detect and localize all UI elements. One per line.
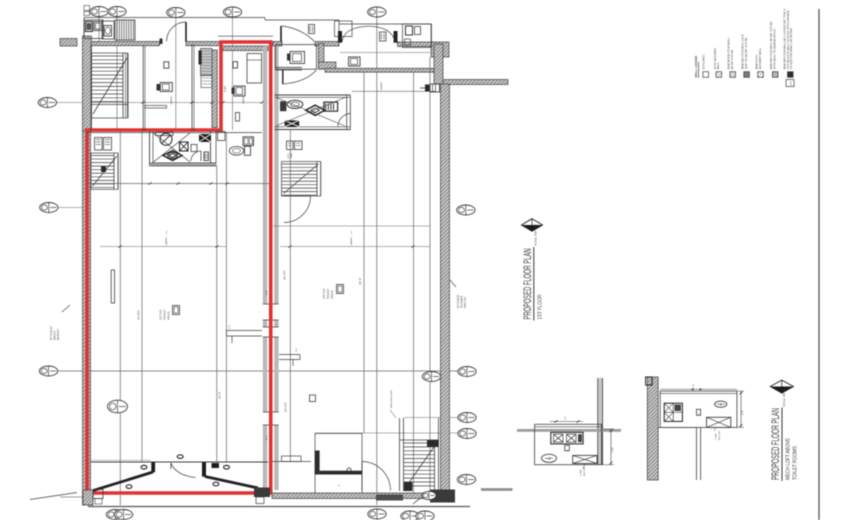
svg-text:18'-4½": 18'-4½" [283,270,287,280]
svg-text:MASONRY WALL: MASONRY WALL [758,47,762,69]
svg-text:ADL: ADL [720,403,723,406]
svg-text:3'-0": 3'-0" [229,324,231,329]
svg-text:CARPET — xx: CARPET — xx [350,230,353,245]
svg-text:18'-0": 18'-0" [358,277,362,285]
svg-text:OUTLINE B: OUTLINE B [462,295,464,308]
svg-text:1ST FLOOR: 1ST FLOOR [538,295,544,320]
svg-text:DUCT UP: DUCT UP [584,466,586,476]
svg-text:WALL LEGEND: WALL LEGEND [694,55,698,78]
svg-text:MECH LOFT ABOVE: MECH LOFT ABOVE [786,438,792,480]
svg-text:9'-9½": 9'-9½" [223,85,227,92]
svg-text:2HR: 2HR [791,81,793,86]
svg-text:WALK AT: WALK AT [54,330,57,340]
svg-text:9'-1": 9'-1" [266,435,269,440]
svg-text:1ST FLR: 1ST FLR [322,289,326,299]
svg-text:W/ 5/8" GYP BD: W/ 5/8" GYP BD [730,50,734,70]
svg-text:CARPET: CARPET [380,81,383,91]
svg-text:CARPET: CARPET [242,94,245,104]
svg-text:16'-6": 16'-6" [218,391,222,399]
svg-text:AS RQD FOR NEW 1-HR RATING: AS RQD FOR NEW 1-HR RATING [789,28,793,69]
svg-text:3'-0": 3'-0" [693,383,695,387]
svg-text:1ST FLR: 1ST FLR [159,310,163,320]
svg-text:EXTG WALL: EXTG WALL [701,54,705,70]
svg-text:SCALE: 3/16"=1'-0": SCALE: 3/16"=1'-0" [534,223,538,246]
svg-text:PROPOSED FLOOR PLAN: PROPOSED FLOOR PLAN [522,248,534,319]
svg-text:EXTG WALL TO REMAIN PATCH: EXTG WALL TO REMAIN PATCH [772,29,776,69]
svg-text:TOILET ROOMS: TOILET ROOMS [793,446,799,480]
svg-text:7'-6": 7'-6" [612,447,615,452]
svg-text:EXTG ALLEY: EXTG ALLEY [50,326,53,340]
svg-text:10'-2½": 10'-2½" [284,402,288,412]
svg-text:31'-0½": 31'-0½" [137,310,141,320]
svg-text:7'-4": 7'-4" [742,410,745,415]
svg-text:3'-0": 3'-0" [296,347,298,352]
svg-text:WALL: WALL [716,62,720,70]
svg-text:PROPOSED FLOOR PLAN: PROPOSED FLOOR PLAN [770,408,782,480]
svg-text:SCALE: 3/8"=1'-0": SCALE: 3/8"=1'-0" [782,386,786,407]
svg-text:EXTG: EXTG [288,153,290,159]
svg-text:FIRST EXT.: FIRST EXT. [465,296,467,308]
svg-text:CARPET — xx: CARPET — xx [165,230,168,245]
svg-text:@16" OC W/ 5/8" GYP BD: @16" OC W/ 5/8" GYP BD [744,37,748,69]
svg-text:TENANT: TENANT [163,309,167,320]
svg-text:EXTG BLDG: EXTG BLDG [458,295,460,308]
svg-text:TENANT: TENANT [326,288,330,299]
svg-text:9'-0": 9'-0" [266,290,269,295]
svg-text:DUCT UP: DUCT UP [719,430,721,440]
svg-text:CARPET: CARPET [170,95,173,105]
svg-text:SPACE: SPACE [330,290,334,299]
svg-text:2'-6": 2'-6" [565,416,567,420]
svg-text:SPACE: SPACE [167,311,171,320]
svg-text:ADL: ADL [548,457,551,461]
svg-text:REAR EXT.: REAR EXT. [57,328,60,340]
svg-text:4" REF: 4" REF [581,469,583,476]
svg-text:4" REF: 4" REF [716,433,718,440]
svg-text:NEW ROOF INFO: NEW ROOF INFO [391,390,393,408]
